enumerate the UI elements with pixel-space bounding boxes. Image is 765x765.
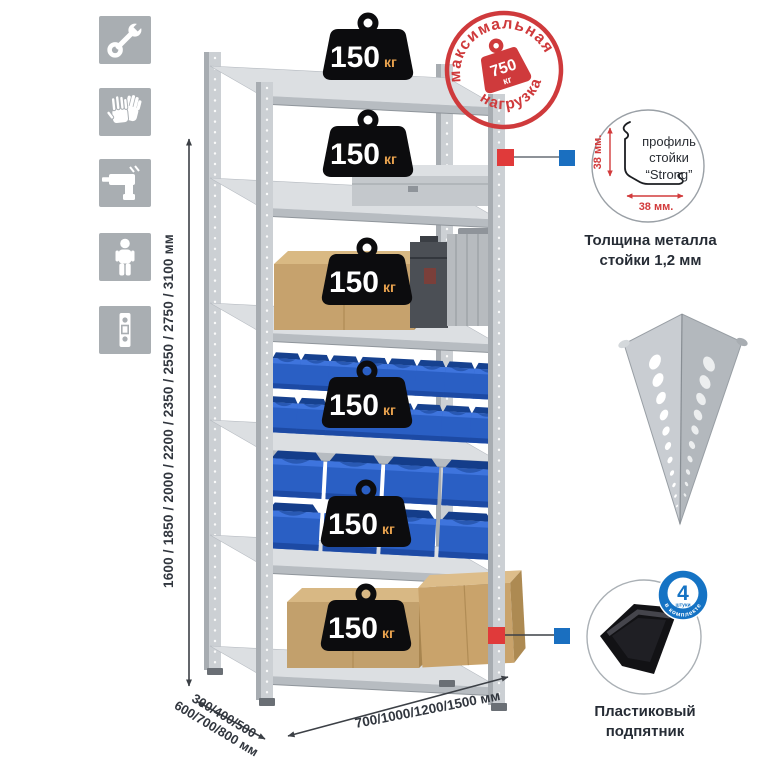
corner-post-image bbox=[600, 302, 760, 532]
height-dimension-label: 1600 / 1850 / 2000 / 2200 / 2350 / 2550 … bbox=[161, 131, 179, 691]
foot-caption-line1: Пластиковый bbox=[582, 702, 708, 722]
gloves-icon bbox=[99, 88, 151, 136]
cardboard-box bbox=[274, 251, 428, 330]
profile-label-2: стойки bbox=[649, 150, 689, 165]
foot-caption: Пластиковый подпятник bbox=[582, 702, 708, 741]
person-icon bbox=[99, 233, 151, 281]
blue-marker-top bbox=[559, 150, 575, 166]
profile-dim-vertical: 38 мм. bbox=[592, 135, 604, 170]
quantity-badge: 4 штуки в комплекте bbox=[656, 568, 710, 622]
product-infographic: 150 кг 150 кг 150 кг 150 кг 150 bbox=[0, 0, 765, 765]
profile-callout: 38 мм. 38 мм. профиль стойки “Strong” bbox=[581, 104, 715, 238]
red-marker-bottom bbox=[488, 627, 505, 644]
quantity-sub: штуки bbox=[675, 603, 690, 609]
drill-icon bbox=[99, 159, 151, 207]
blue-marker-bottom bbox=[554, 628, 570, 644]
foot-connector bbox=[488, 627, 570, 644]
metal-case bbox=[352, 165, 502, 206]
red-marker-top bbox=[497, 149, 514, 166]
wrench-icon bbox=[99, 16, 151, 64]
profile-caption: Толщина металла стойки 1,2 мм bbox=[578, 231, 723, 270]
profile-label-1: профиль bbox=[642, 134, 696, 149]
profile-label-3: “Strong” bbox=[646, 167, 693, 182]
profile-dim-horizontal: 38 мм. bbox=[639, 201, 674, 213]
max-load-stamp: максимальная нагрузка 750 кг bbox=[440, 6, 568, 134]
profile-connector bbox=[497, 149, 575, 166]
foot-caption-line2: подпятник bbox=[582, 722, 708, 742]
perforated-post-icon bbox=[99, 306, 151, 354]
profile-caption-line2: стойки 1,2 мм bbox=[578, 251, 723, 271]
profile-caption-line1: Толщина металла bbox=[578, 231, 723, 251]
dark-case bbox=[410, 236, 448, 328]
small-bins-back-row bbox=[270, 352, 505, 400]
